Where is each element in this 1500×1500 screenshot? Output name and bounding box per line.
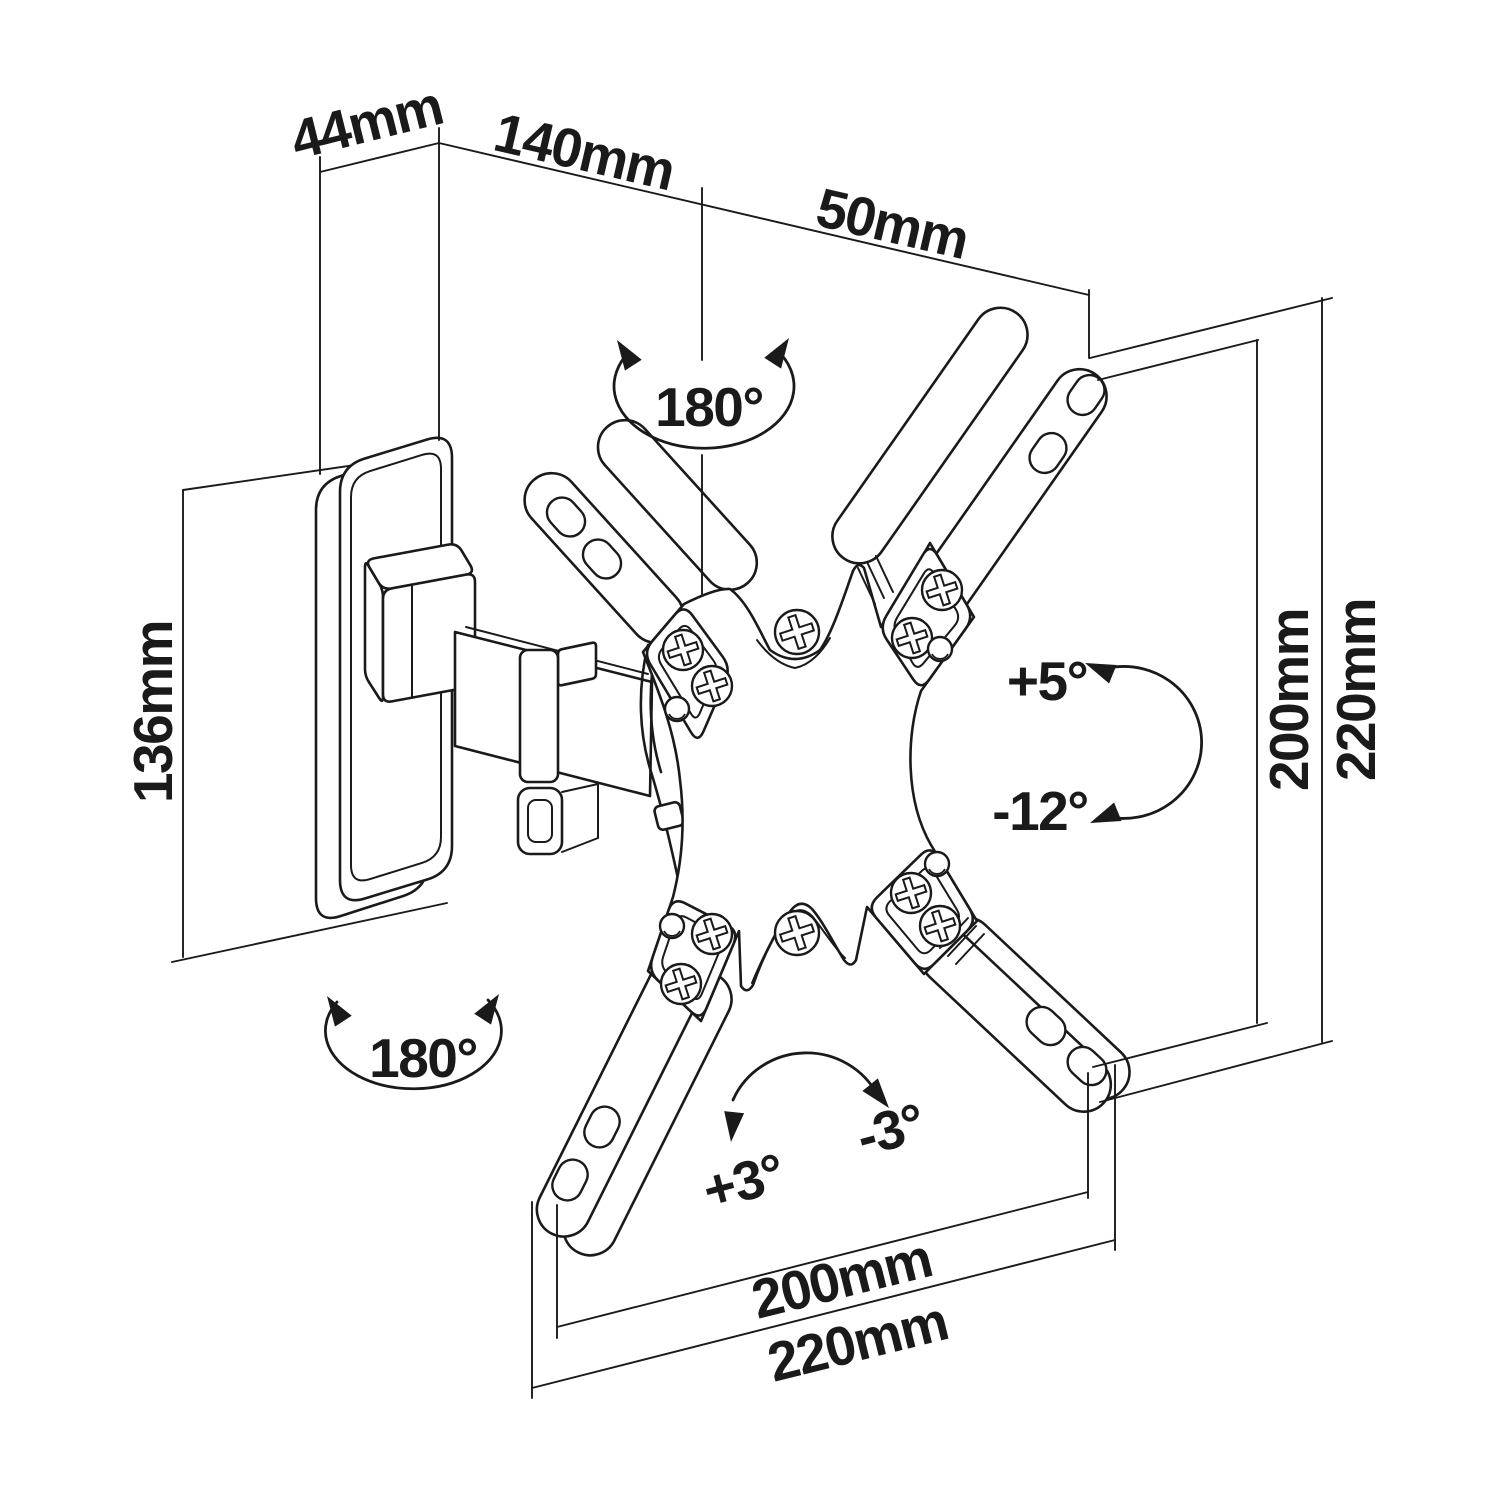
level-arc xyxy=(733,1053,878,1100)
arrowhead-icon xyxy=(1086,802,1121,832)
arrowhead-icon xyxy=(721,1111,744,1143)
angle-label-minus3: -3° xyxy=(850,1091,930,1168)
dim-label-136mm: 136mm xyxy=(122,621,184,803)
arrowhead-icon xyxy=(474,989,507,1025)
cable-hook xyxy=(518,788,562,854)
dim-label-44mm: 44mm xyxy=(285,74,448,171)
arrowhead-icon xyxy=(764,333,797,369)
angle-label-plus5: +5° xyxy=(1007,650,1087,712)
angle-label-180-top: 180° xyxy=(655,376,763,438)
phillips-screw xyxy=(692,666,732,706)
diagram-canvas: 44mm 140mm 50mm 136mm 200mm 220mm 200mm … xyxy=(0,0,1500,1500)
tv-mount-dimension-diagram: 44mm 140mm 50mm 136mm 200mm 220mm 200mm … xyxy=(0,0,1500,1500)
phillips-screw xyxy=(775,911,819,955)
ext-line xyxy=(1100,1041,1332,1102)
pad-hole xyxy=(660,914,684,938)
dim-label-50mm: 50mm xyxy=(811,176,974,271)
dim-label-140mm: 140mm xyxy=(489,101,680,202)
phillips-screw xyxy=(922,570,962,610)
angle-label-180-base: 180° xyxy=(369,1027,477,1089)
pad-hole xyxy=(928,637,952,661)
ext-line xyxy=(1093,1023,1267,1067)
ext-line xyxy=(1090,298,1332,358)
angle-label-plus3: +3° xyxy=(696,1141,790,1222)
ext-line xyxy=(1098,340,1258,380)
clip-side-face xyxy=(558,643,596,686)
angle-label-minus12: -12° xyxy=(992,780,1088,842)
phillips-screw xyxy=(663,630,703,670)
phillips-screw xyxy=(692,914,732,954)
pad-hole xyxy=(665,697,689,721)
phillips-screw xyxy=(891,873,931,913)
phillips-screw xyxy=(661,964,701,1004)
bracket-tab xyxy=(653,801,684,831)
arrowhead-icon xyxy=(609,335,642,371)
arrowhead-icon xyxy=(319,991,352,1027)
dim-label-200mm-right: 200mm xyxy=(1258,609,1320,791)
phillips-screw xyxy=(775,610,819,654)
hook-top-edge xyxy=(562,784,598,792)
clip-front-band xyxy=(520,650,558,782)
tilt-arc xyxy=(1100,666,1202,818)
phillips-screw xyxy=(920,906,960,946)
pad-hole xyxy=(925,852,949,876)
phillips-screw xyxy=(892,618,932,658)
wall-bottom-edge xyxy=(172,903,447,962)
dim-label-220mm-right: 220mm xyxy=(1325,599,1387,781)
hook-bottom-edge xyxy=(562,838,598,852)
